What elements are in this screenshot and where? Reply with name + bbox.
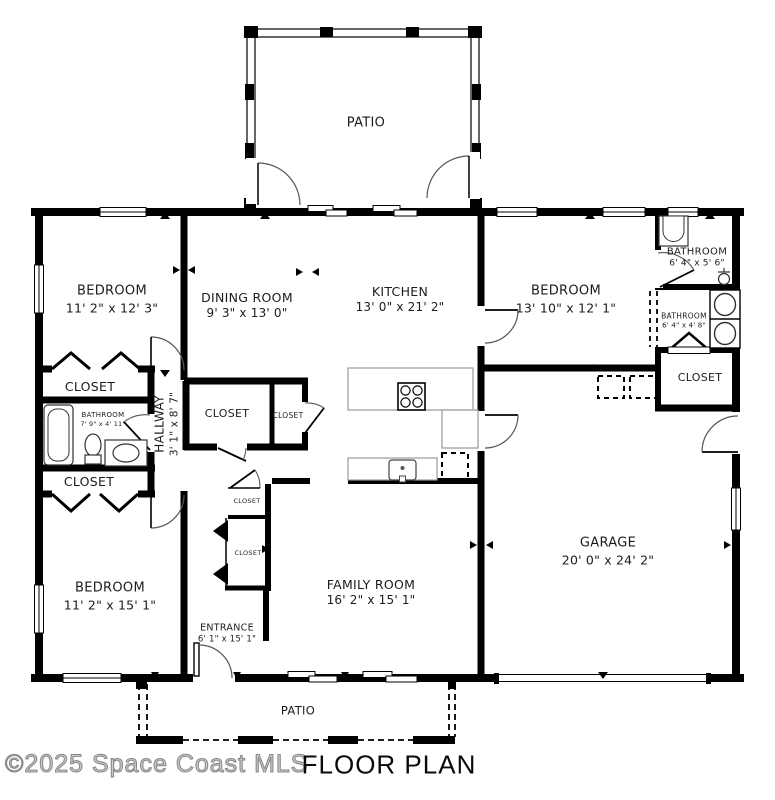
room-name: DINING ROOM	[201, 290, 293, 306]
room-label-family-room: FAMILY ROOM 16' 2" x 15' 1"	[327, 577, 416, 609]
room-label-patio-top: PATIO	[347, 116, 385, 133]
room-dims: 6' 4" x 5' 6"	[667, 259, 727, 271]
room-dims: 20' 0" x 24' 2"	[562, 552, 654, 568]
room-label-garage: GARAGE 20' 0" x 24' 2"	[562, 535, 654, 568]
patio-top-doors	[246, 152, 480, 205]
room-dims: 13' 10" x 12' 1"	[516, 300, 617, 316]
room-name: KITCHEN	[356, 284, 445, 300]
washer-dryer	[598, 376, 656, 398]
room-label-dining-room: DINING ROOM 9' 3" x 13' 0"	[201, 290, 293, 322]
room-label-hallway: HALLWAY 3' 1" x 8' 7"	[152, 392, 181, 456]
room-name: PATIO	[347, 116, 385, 133]
room-label-bedroom-bottom-left: BEDROOM 11' 2" x 15' 1"	[64, 580, 156, 613]
room-dims: 6' 1" x 15' 1"	[198, 635, 256, 646]
room-dims: 7' 9" x 4' 11"	[80, 420, 125, 428]
room-label-patio-bottom: PATIO	[281, 704, 315, 719]
page-title: FLOOR PLAN	[302, 750, 477, 781]
room-dims: 11' 2" x 15' 1"	[64, 597, 156, 613]
room-label-bathroom-top-right: BATHROOM 6' 4" x 5' 6"	[667, 246, 727, 271]
room-name: BEDROOM	[66, 283, 158, 300]
room-name: BEDROOM	[516, 283, 617, 300]
dashed-walls	[650, 291, 657, 347]
room-name: FAMILY ROOM	[327, 577, 416, 593]
watermark-text: ©2025 Space Coast MLS	[5, 750, 308, 779]
room-name: BATHROOM	[667, 246, 727, 259]
room-name: CLOSET	[234, 549, 261, 557]
room-name: PATIO	[281, 704, 315, 719]
floor-plan-page: PATIO BEDROOM 11' 2" x 12' 3" DINING ROO…	[0, 0, 775, 800]
room-name: CLOSET	[678, 371, 723, 385]
room-name: BATHROOM	[661, 312, 707, 322]
room-label-closet-stack-bottom: CLOSET	[234, 549, 261, 557]
room-label-bedroom-top-left: BEDROOM 11' 2" x 12' 3"	[66, 283, 158, 316]
floor-plan-drawing	[0, 0, 775, 800]
room-name: CLOSET	[65, 379, 115, 395]
room-name: CLOSET	[205, 407, 250, 421]
room-label-entrance: ENTRANCE 6' 1" x 15' 1"	[198, 622, 256, 645]
room-dims: 9' 3" x 13' 0"	[201, 306, 293, 322]
bath-midright-vanity	[710, 290, 740, 348]
room-dims: 16' 2" x 15' 1"	[327, 593, 416, 609]
room-label-closet-stack-top: CLOSET	[233, 497, 260, 505]
room-label-closet-left-2: CLOSET	[64, 474, 114, 490]
room-label-closet-left-1: CLOSET	[65, 379, 115, 395]
room-label-bedroom-top-right: BEDROOM 13' 10" x 12' 1"	[516, 283, 617, 316]
room-name: BEDROOM	[64, 580, 156, 597]
room-label-bathroom-left: BATHROOM 7' 9" x 4' 11"	[80, 411, 125, 429]
room-dims: 11' 2" x 12' 3"	[66, 300, 158, 316]
room-dims: 13' 0" x 21' 2"	[356, 300, 445, 316]
bath2-threshold	[668, 347, 710, 354]
room-name: BATHROOM	[80, 411, 125, 420]
room-label-closet-mid-small: CLOSET	[273, 411, 304, 421]
room-dims: 3' 1" x 8' 7"	[168, 392, 182, 456]
room-dims: 6' 4" x 4' 8"	[661, 321, 707, 330]
room-name: CLOSET	[273, 411, 304, 421]
room-name: CLOSET	[64, 474, 114, 490]
room-label-closet-right: CLOSET	[678, 371, 723, 385]
room-name: ENTRANCE	[198, 622, 256, 634]
kitchen-fixtures	[348, 368, 478, 482]
room-name: GARAGE	[562, 535, 654, 552]
opening-markers	[151, 212, 731, 679]
room-name: HALLWAY	[152, 392, 168, 456]
room-label-closet-mid-large: CLOSET	[205, 407, 250, 421]
room-label-bathroom-mid-right: BATHROOM 6' 4" x 4' 8"	[661, 312, 707, 331]
room-label-kitchen: KITCHEN 13' 0" x 21' 2"	[356, 284, 445, 316]
room-name: CLOSET	[233, 497, 260, 505]
